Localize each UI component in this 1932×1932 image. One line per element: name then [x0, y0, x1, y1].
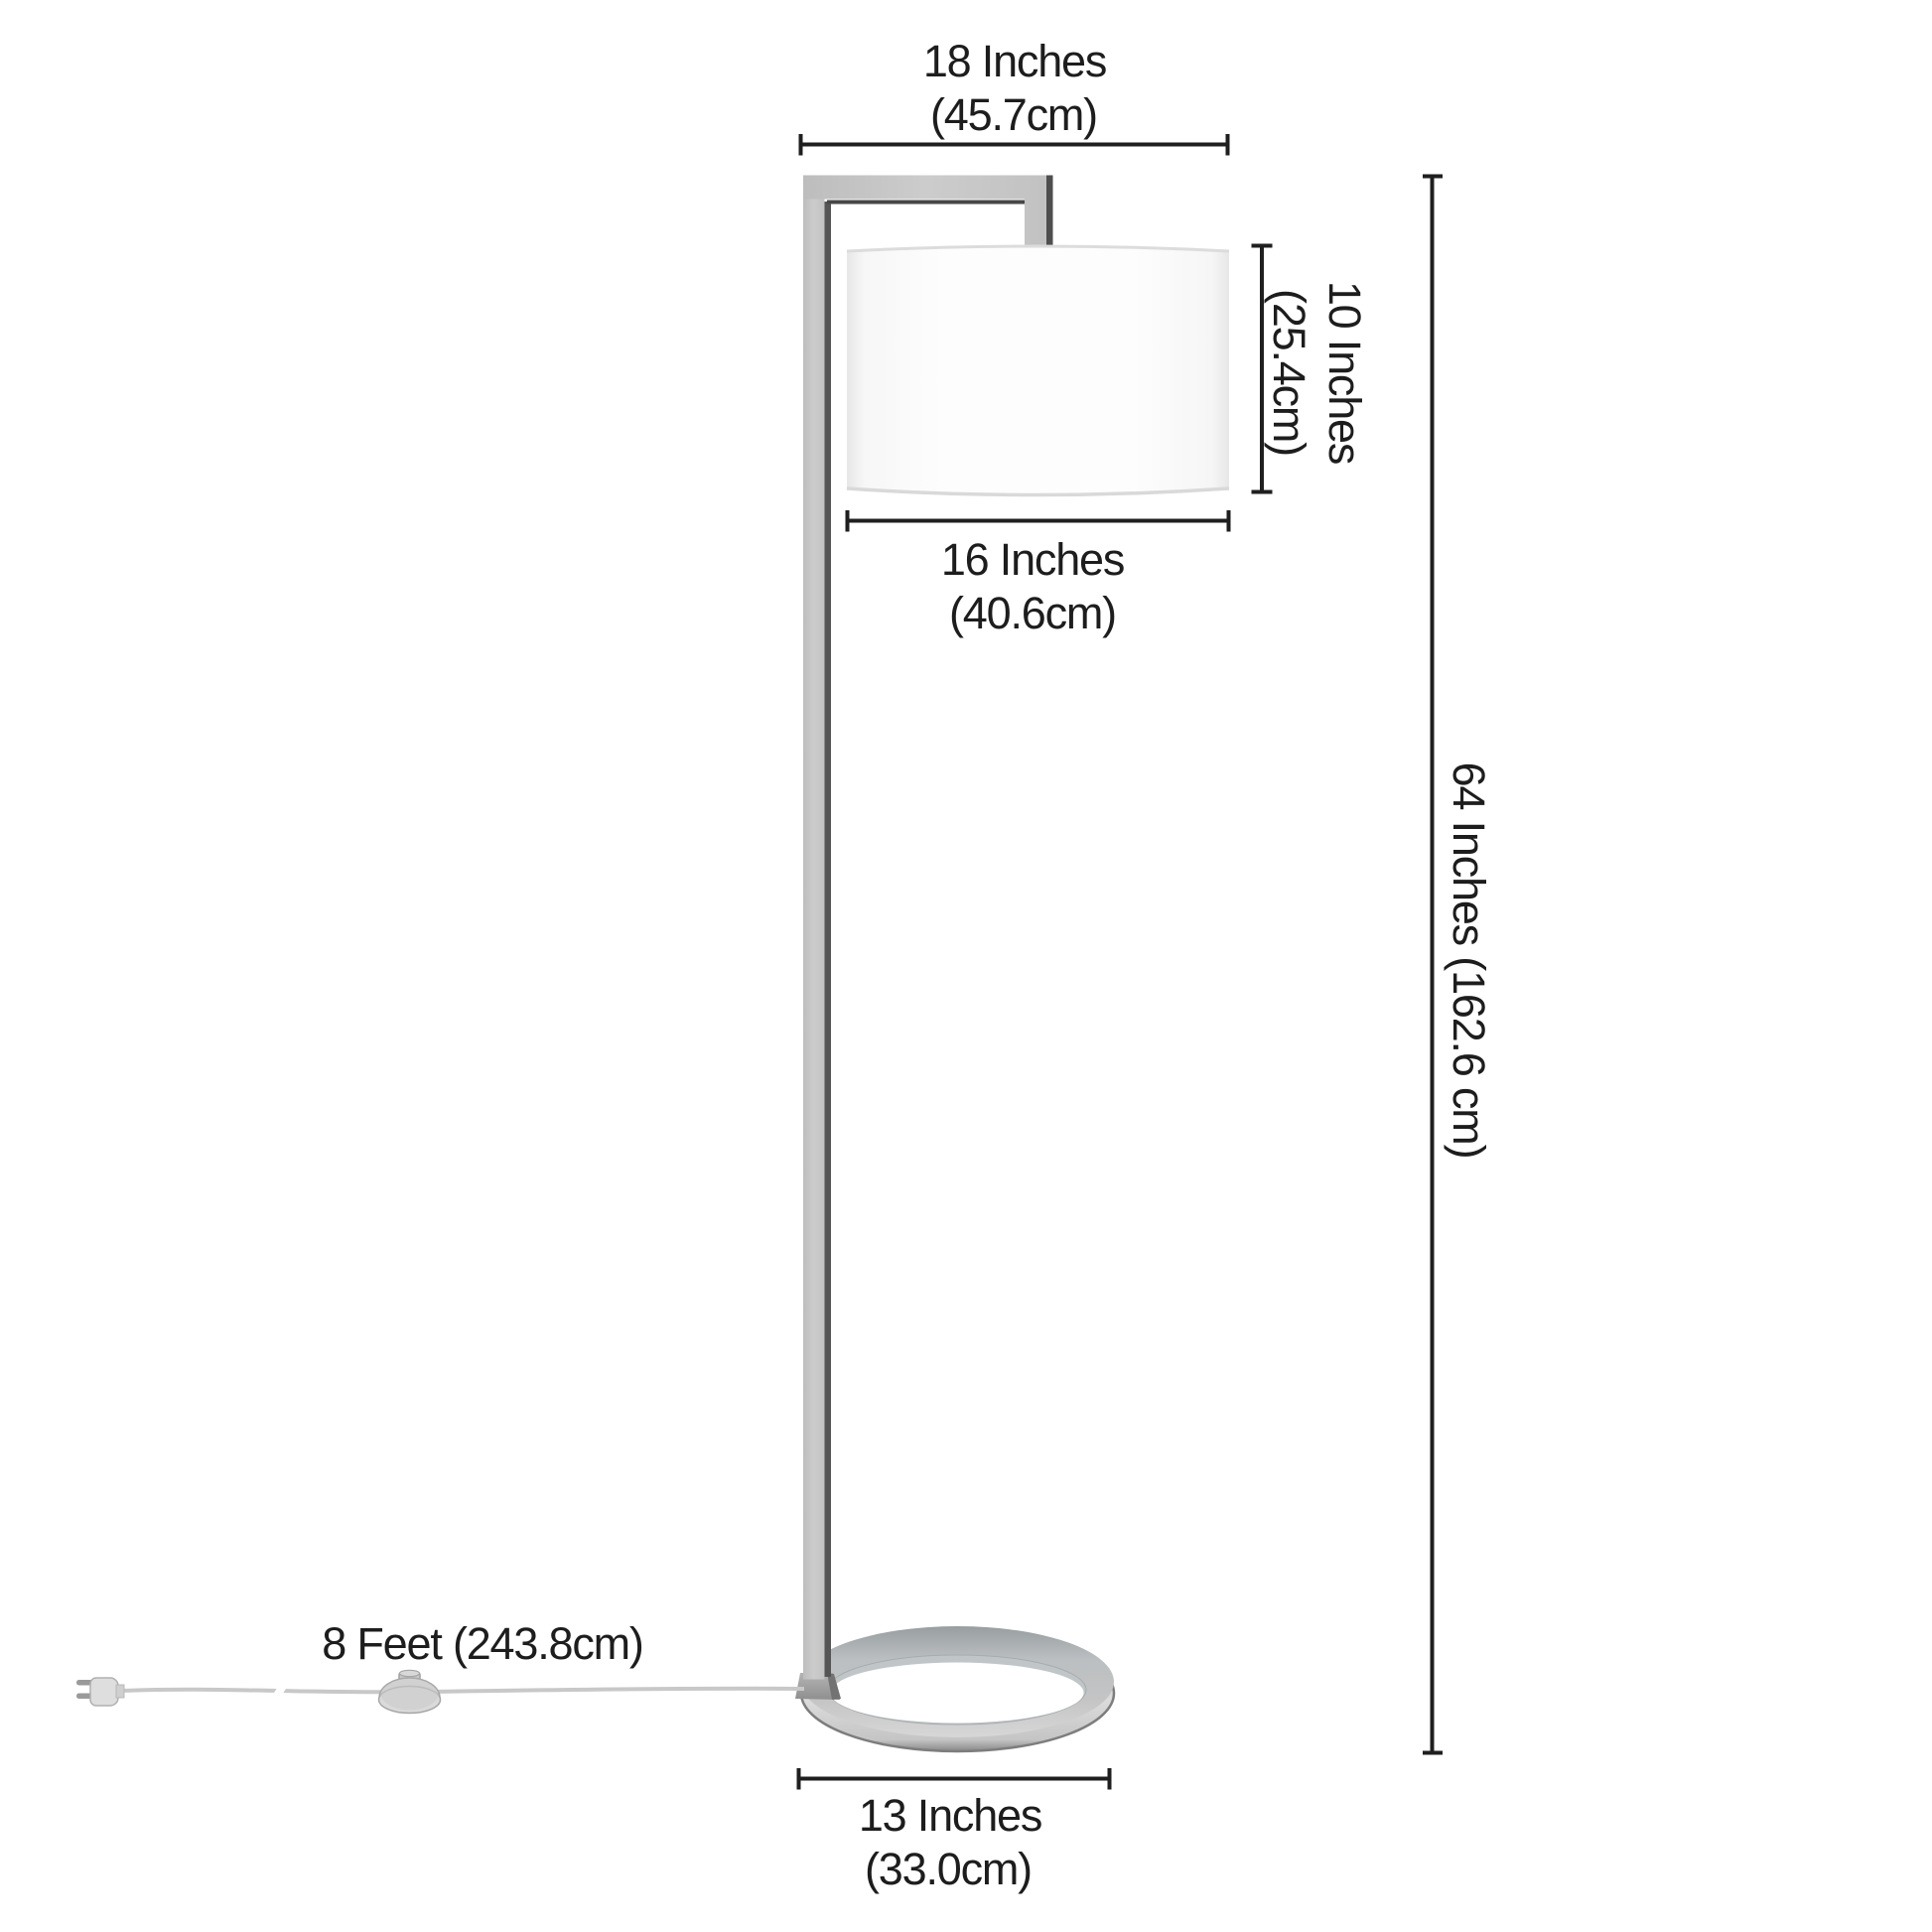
svg-text:(40.6cm): (40.6cm) [949, 588, 1116, 638]
svg-text:16 Inches: 16 Inches [941, 534, 1124, 585]
svg-text:10 Inches: 10 Inches [1319, 281, 1370, 464]
svg-text:18 Inches: 18 Inches [923, 36, 1106, 86]
svg-text:(33.0cm): (33.0cm) [865, 1844, 1032, 1894]
svg-text:(25.4cm): (25.4cm) [1264, 289, 1314, 456]
svg-text:13 Inches: 13 Inches [859, 1790, 1041, 1841]
svg-text:8 Feet (243.8cm): 8 Feet (243.8cm) [322, 1618, 642, 1669]
svg-text:(45.7cm): (45.7cm) [930, 89, 1097, 140]
svg-text:64 Inches (162.6 cm): 64 Inches (162.6 cm) [1444, 762, 1494, 1159]
